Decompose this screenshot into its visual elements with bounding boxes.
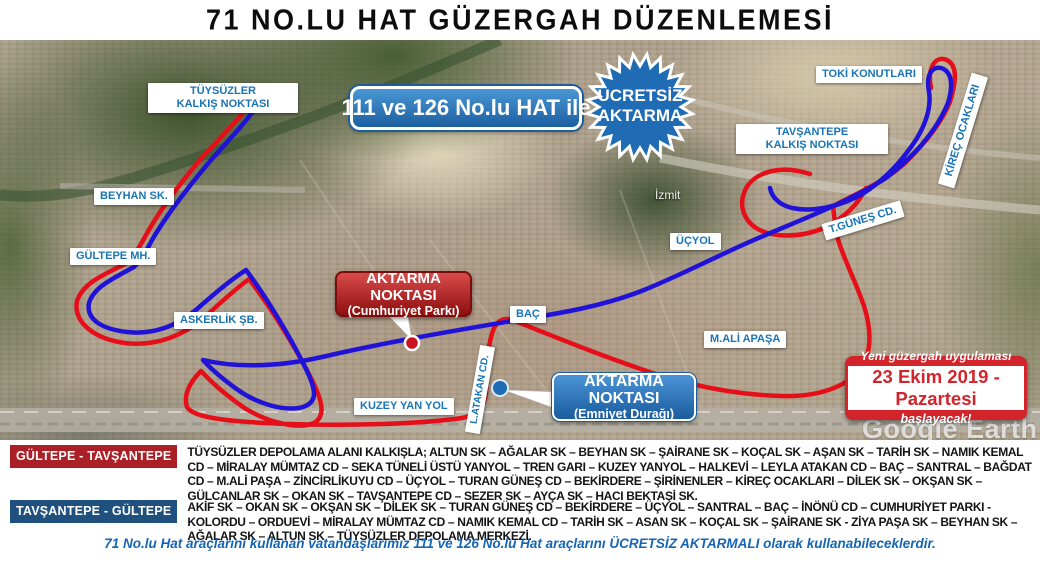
route-description-panel: GÜLTEPE - TAVŞANTEPE TÜYSÜZLER DEPOLAMA … xyxy=(0,440,1040,562)
stop-dot-cumhuriyet xyxy=(405,336,419,350)
callout-cumhuriyet-subtitle: (Cumhuriyet Parkı) xyxy=(337,304,470,318)
transfer-banner: 111 ve 126 No.lu HAT ile xyxy=(350,86,582,130)
callout-emniyet: AKTARMA NOKTASI (Emniyet Durağı) xyxy=(552,373,696,421)
callout-cumhuriyet-title: AKTARMA NOKTASI xyxy=(337,270,470,304)
map-label-beyhan: BEYHAN SK. xyxy=(94,188,174,205)
map-label-ucyol: ÜÇYOL xyxy=(670,233,721,250)
pointer-emniyet xyxy=(504,390,554,408)
announcement-line1: Yeni güzergah uygulaması xyxy=(845,349,1027,364)
callout-emniyet-subtitle: (Emniyet Durağı) xyxy=(554,407,694,421)
map-label-toki: TOKİ KONUTLARI xyxy=(816,66,922,83)
route-row-gultepe-tavsantepe: GÜLTEPE - TAVŞANTEPE TÜYSÜZLER DEPOLAMA … xyxy=(10,445,1040,503)
map-label-mali-apasa: M.ALİ APAŞA xyxy=(704,331,786,348)
stop-dot-emniyet xyxy=(492,380,508,396)
route-change-poster: 71 NO.LU HAT GÜZERGAH DÜZENLEMESİ xyxy=(0,0,1040,562)
announcement-line3: başlayacak! xyxy=(845,412,1027,427)
route-description-gultepe-tavsantepe: TÜYSÜZLER DEPOLAMA ALANI KALKIŞLA; ALTUN… xyxy=(187,445,1040,503)
start-date-announcement: Yeni güzergah uygulaması 23 Ekim 2019 - … xyxy=(845,356,1027,420)
map-label-tavsantepe: TAVŞANTEPE KALKIŞ NOKTASI xyxy=(736,124,888,154)
starburst-text: ÜCRETSİZ AKTARMA xyxy=(575,86,705,126)
satellite-map: 111 ve 126 No.lu HAT ile ÜCRETSİZ AKTARM… xyxy=(0,40,1040,440)
callout-cumhuriyet: AKTARMA NOKTASI (Cumhuriyet Parkı) xyxy=(335,271,472,317)
map-label-kuzey-yan-yol: KUZEY YAN YOL xyxy=(354,398,454,415)
map-label-tuysuzler: TÜYSÜZLER KALKIŞ NOKTASI xyxy=(148,83,298,113)
free-transfer-footnote: 71 No.lu Hat araçlarını kullanan vatanda… xyxy=(0,536,1040,551)
announcement-date: 23 Ekim 2019 - Pazartesi xyxy=(848,366,1024,410)
callout-emniyet-title: AKTARMA NOKTASI xyxy=(554,373,694,407)
map-label-bac: BAÇ xyxy=(510,306,546,323)
izmit-place-label: İzmit xyxy=(655,188,680,202)
map-label-gultepe: GÜLTEPE MH. xyxy=(70,248,156,265)
map-label-askerlik: ASKERLİK ŞB. xyxy=(174,312,264,329)
route-badge-tavsantepe-gultepe: TAVŞANTEPE - GÜLTEPE xyxy=(10,500,177,523)
route-badge-gultepe-tavsantepe: GÜLTEPE - TAVŞANTEPE xyxy=(10,445,177,468)
page-title: 71 NO.LU HAT GÜZERGAH DÜZENLEMESİ xyxy=(206,4,834,37)
title-bar: 71 NO.LU HAT GÜZERGAH DÜZENLEMESİ xyxy=(0,0,1040,40)
